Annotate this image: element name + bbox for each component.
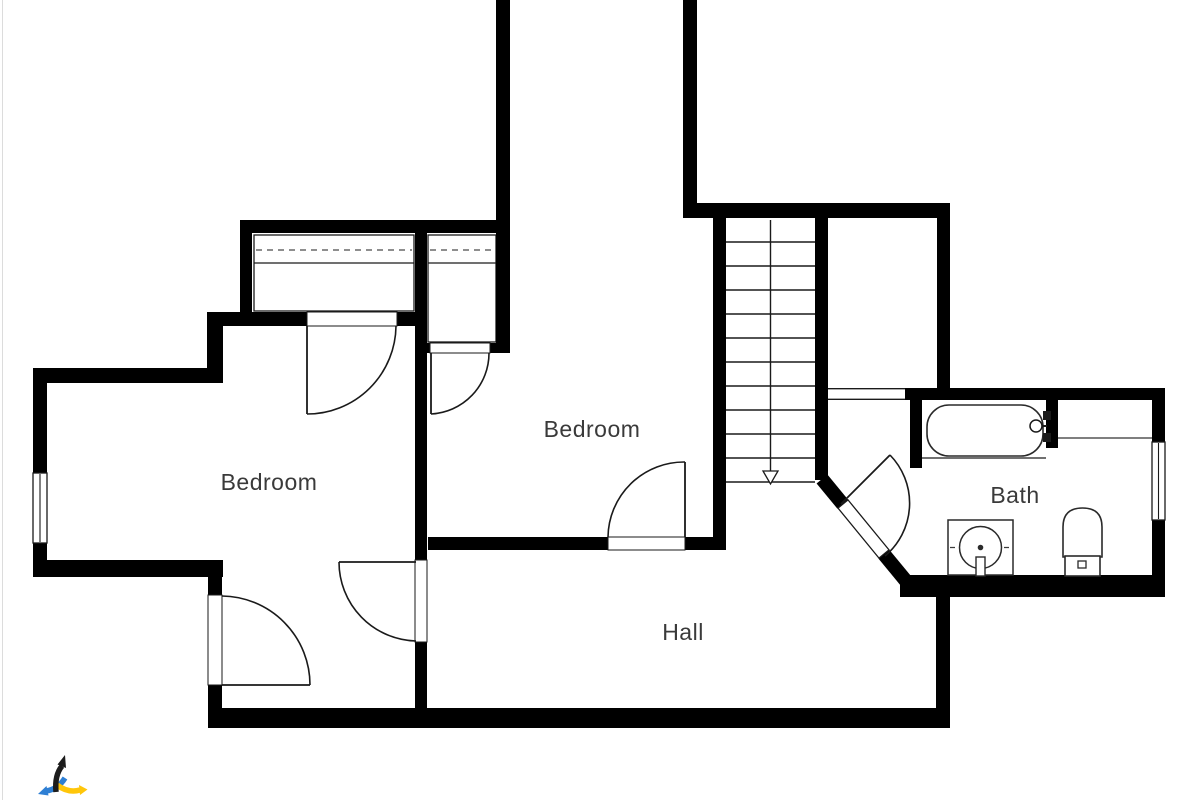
- door-jamb: [415, 560, 427, 642]
- door-left-hall-arc: [222, 596, 310, 685]
- room-label-bedroom-middle: Bedroom: [544, 416, 641, 442]
- floorplan-page: Bedroom Bedroom Hall Bath: [0, 0, 1200, 800]
- bathtub: [927, 405, 1043, 456]
- wall: [683, 0, 697, 218]
- door-jamb: [430, 343, 490, 353]
- room-label-bath: Bath: [990, 482, 1039, 508]
- floorplan-drawing: Bedroom Bedroom Hall Bath: [0, 0, 1200, 800]
- door-bath-leaf: [841, 455, 890, 504]
- door-middle-hall-arc: [608, 462, 685, 537]
- door-bath-arc: [885, 455, 910, 556]
- sink-tap: [976, 557, 985, 576]
- wall: [815, 218, 828, 480]
- logo-arrows: [38, 755, 88, 796]
- door-jamb: [608, 537, 685, 550]
- logo-arrow-blue-icon: [38, 786, 49, 796]
- wall: [240, 233, 252, 320]
- door-jamb: [307, 312, 397, 326]
- wall: [900, 575, 1165, 597]
- room-label-bedroom-left: Bedroom: [221, 469, 318, 495]
- wall: [35, 368, 223, 383]
- logo-arrow-yellow-icon: [79, 785, 88, 795]
- sink-drain: [978, 545, 984, 551]
- wall: [936, 597, 950, 710]
- wall: [713, 218, 726, 550]
- wall: [240, 220, 510, 233]
- toilet-bowl: [1063, 508, 1102, 557]
- room-label-hall: Hall: [662, 619, 704, 645]
- logo-arrow-yellow-icon: [57, 785, 80, 791]
- walls-layer: [33, 0, 1165, 728]
- wall: [33, 560, 223, 577]
- door-middle-closet-arc: [431, 353, 489, 414]
- closet: [428, 235, 496, 342]
- doors-layer: [222, 326, 910, 685]
- closet: [254, 235, 414, 311]
- faucet-mount: [1043, 411, 1051, 420]
- faucet-mount: [1043, 433, 1051, 442]
- wall: [496, 0, 510, 233]
- wall-opening: [828, 388, 905, 400]
- door-left-closet-arc: [307, 326, 396, 414]
- wall: [683, 203, 950, 218]
- wall: [937, 218, 950, 400]
- wall: [910, 400, 922, 468]
- door-jamb: [208, 595, 222, 685]
- brand-logo: [38, 755, 88, 796]
- door-leaf-closed: [838, 500, 889, 558]
- wall: [208, 708, 950, 728]
- toilet-flush-button: [1078, 561, 1086, 568]
- bathtub-faucet-icon: [1030, 420, 1042, 432]
- wall: [496, 233, 510, 353]
- door-bedrooms-arc: [339, 562, 416, 641]
